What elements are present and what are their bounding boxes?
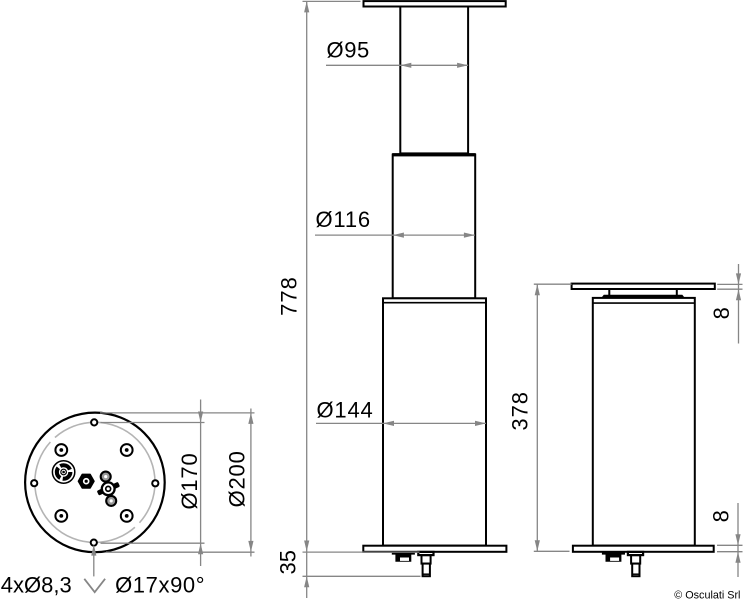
svg-text:778: 778 [277,276,302,316]
svg-text:Ø116: Ø116 [316,207,371,232]
svg-text:35: 35 [275,550,300,574]
svg-text:378: 378 [507,391,532,431]
svg-text:Ø95: Ø95 [327,37,370,62]
svg-text:© Osculati Srl: © Osculati Srl [674,589,740,600]
svg-text:Ø17x90°: Ø17x90° [115,572,205,597]
svg-text:8: 8 [709,307,734,319]
svg-text:8: 8 [709,510,734,522]
svg-text:Ø170: Ø170 [177,452,202,509]
svg-text:Ø144: Ø144 [317,398,374,423]
svg-text:Ø200: Ø200 [224,450,249,507]
svg-text:4xØ8,3: 4xØ8,3 [1,572,72,597]
